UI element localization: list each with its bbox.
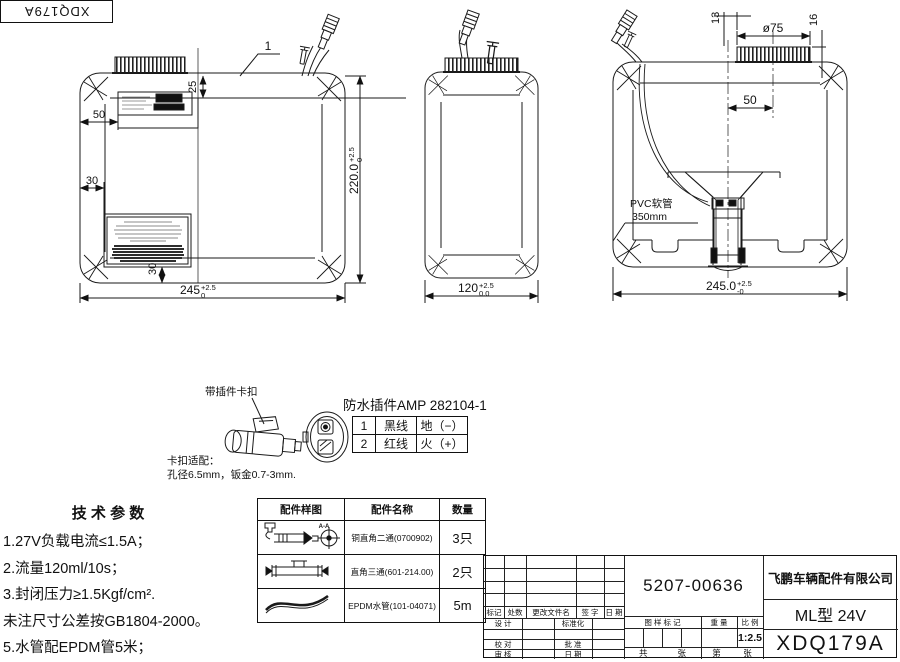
part-number: 5207-00636 bbox=[624, 556, 763, 616]
dim-height-220: 220.0 +2.5 0 bbox=[347, 147, 364, 194]
pin-polarity: 地（−） bbox=[417, 417, 468, 435]
rear-view-drawing: ø75 13 16 50 PVC软管 350mm 245.0 +2.5 -0 bbox=[609, 10, 847, 301]
outlet-nozzle-icon bbox=[297, 46, 310, 64]
part-name: 直角三通(601-214.00) bbox=[345, 555, 440, 589]
pin-row: 1 黑线 地（−） bbox=[353, 417, 468, 435]
parts-row: A-A 铜直角二通(0700902) 3只 bbox=[258, 521, 486, 555]
part-name: EPDM水管(101-04071) bbox=[345, 589, 440, 623]
svg-text:120: 120 bbox=[458, 281, 478, 295]
dim-30-left: 30 bbox=[86, 175, 98, 187]
dim-30-bottom: 30 bbox=[147, 263, 159, 275]
svg-text:245: 245 bbox=[180, 283, 200, 297]
svg-text:0.0: 0.0 bbox=[479, 289, 489, 298]
dim-50-front: 50 bbox=[93, 109, 105, 121]
svg-text:350mm: 350mm bbox=[632, 211, 667, 223]
side-view-drawing: 120 +2.5 0.0 bbox=[425, 10, 538, 303]
clip-fit-spec: 孔径6.5mm，钣金0.7-3mm. bbox=[167, 467, 296, 482]
parts-row: EPDM水管(101-04071) 5m bbox=[258, 589, 486, 623]
parts-table: 配件样图 配件名称 数量 A-A 铜直角二通(0700902) 3只 bbox=[257, 498, 486, 623]
filler-cap-side bbox=[443, 58, 520, 72]
front-view-drawing: 1 25 50 30 30 220.0 +2.5 0 245 +2.5 0 bbox=[80, 14, 406, 303]
dim-width-120: 120 +2.5 0.0 bbox=[458, 281, 494, 298]
label-drawing-mark: 图 样 标 记 bbox=[624, 616, 701, 628]
part-qty: 2只 bbox=[440, 555, 486, 589]
small-label bbox=[118, 92, 192, 115]
wire-plug-icon bbox=[609, 10, 637, 45]
label-weight: 重 量 bbox=[701, 616, 737, 628]
technical-parameters: 技 术 参 数 1.27V负载电流≤1.5A； 2.流量120ml/10s； 3… bbox=[3, 502, 265, 662]
sheet-total-prefix: 共 bbox=[639, 647, 648, 659]
elbow-fitting-sketch: A-A bbox=[258, 521, 345, 555]
tech-param-item: 未注尺寸公差按GB1804-2000。 bbox=[3, 609, 265, 636]
pin-polarity: 火（+） bbox=[417, 435, 468, 453]
rev-header-sign: 签 字 bbox=[576, 606, 604, 618]
pin-wire: 黑线 bbox=[376, 417, 417, 435]
title-block: 标记 处数 更改文件名 签 字 日 期 设 计 标准化 校 对 批 准 审 核 … bbox=[483, 555, 897, 658]
part-qty: 5m bbox=[440, 589, 486, 623]
sheet-total-suffix: 张 bbox=[677, 647, 686, 659]
svg-text:-0: -0 bbox=[737, 287, 744, 296]
tech-param-item: 5.水管配EPDM管5米； bbox=[3, 635, 265, 662]
epdm-hose-sketch bbox=[258, 589, 345, 623]
dim-width-245: 245 +2.5 0 bbox=[180, 283, 216, 300]
pin-wire: 红线 bbox=[376, 435, 417, 453]
filler-cap-front bbox=[112, 57, 188, 73]
frame-code-box: XDQ179A bbox=[0, 0, 113, 23]
dim-50-rear: 50 bbox=[743, 93, 757, 107]
parts-header-row: 配件样图 配件名称 数量 bbox=[258, 499, 486, 521]
tech-params-title: 技 术 参 数 bbox=[33, 502, 183, 523]
part-qty: 3只 bbox=[440, 521, 486, 555]
callout-1: 1 bbox=[265, 39, 272, 53]
tee-fitting-sketch bbox=[258, 555, 345, 589]
sheet-page-suffix: 张 bbox=[743, 647, 752, 659]
drawing-number: XDQ179A bbox=[763, 629, 898, 659]
svg-text:220.0: 220.0 bbox=[347, 164, 361, 194]
svg-text:PVC软管: PVC软管 bbox=[630, 197, 673, 210]
label-date: 日 期 bbox=[554, 649, 592, 659]
sheet-page-prefix: 第 bbox=[712, 647, 721, 659]
tech-param-item: 1.27V负载电流≤1.5A； bbox=[3, 529, 265, 556]
scale-value: 1:2.5 bbox=[737, 628, 763, 647]
parts-header-name: 配件名称 bbox=[345, 499, 440, 521]
label-approve: 批 准 bbox=[554, 639, 592, 649]
dim-width-245-rear: 245.0 +2.5 -0 bbox=[706, 279, 752, 296]
pump-wires-rear bbox=[609, 10, 642, 62]
rev-header-docname: 更改文件名 bbox=[526, 606, 576, 618]
pvc-hose-label: PVC软管 350mm bbox=[613, 197, 698, 241]
pin-table: 1 黑线 地（−） 2 红线 火（+） bbox=[352, 416, 468, 453]
label-design: 设 计 bbox=[484, 618, 522, 629]
tech-param-item: 2.流量120ml/10s； bbox=[3, 556, 265, 583]
company-name: 飞鹏车辆配件有限公司 bbox=[763, 556, 898, 599]
frame-code: XDQ179A bbox=[24, 4, 90, 19]
parts-header-sketch: 配件样图 bbox=[258, 499, 345, 521]
pump-wires-front bbox=[297, 14, 339, 76]
model-designation: ML型 24V bbox=[763, 599, 898, 629]
sheet-page-cell: 第 张 bbox=[701, 647, 763, 659]
parts-header-qty: 数量 bbox=[440, 499, 486, 521]
filler-cap-rear bbox=[735, 47, 812, 62]
dim-13: 13 bbox=[710, 12, 722, 24]
tech-param-item: 3.封闭压力≥1.5Kgf/cm². bbox=[3, 582, 265, 609]
wire-plug-icon bbox=[456, 10, 479, 46]
connector-detail-drawing bbox=[224, 398, 348, 462]
connector-side-view bbox=[224, 413, 303, 458]
label-proofread: 校 对 bbox=[484, 639, 522, 649]
rev-header-mark: 标记 bbox=[484, 606, 504, 618]
connector-front-view bbox=[303, 412, 348, 462]
label-standardization: 标准化 bbox=[554, 618, 592, 629]
pin-number: 1 bbox=[353, 417, 376, 435]
pin-number: 2 bbox=[353, 435, 376, 453]
clip-callout-label: 带插件卡扣 bbox=[205, 384, 258, 399]
clip-fit-title: 卡扣适配： bbox=[167, 453, 220, 468]
big-label bbox=[104, 214, 191, 267]
pump-wires-side bbox=[456, 10, 499, 64]
sheet-total-cell: 共 张 bbox=[624, 647, 701, 659]
dim-cap-diameter: ø75 bbox=[763, 21, 784, 35]
svg-text:0: 0 bbox=[355, 158, 364, 162]
engineering-drawing-sheet: { "frame_code": "XDQ179A", "views": { "f… bbox=[0, 0, 900, 660]
rev-header-count: 处数 bbox=[504, 606, 526, 618]
part-name: 铜直角二通(0700902) bbox=[345, 521, 440, 555]
section-mark-label: A-A bbox=[319, 524, 330, 530]
connector-title: 防水插件AMP 282104-1 bbox=[343, 394, 487, 414]
label-review: 审 核 bbox=[484, 649, 522, 659]
dim-25: 25 bbox=[187, 81, 199, 93]
dim-16: 16 bbox=[808, 14, 820, 26]
pin-row: 2 红线 火（+） bbox=[353, 435, 468, 453]
wire-plug-icon bbox=[315, 14, 339, 50]
rev-header-date: 日 期 bbox=[604, 606, 624, 618]
parts-row: 直角三通(601-214.00) 2只 bbox=[258, 555, 486, 589]
svg-text:245.0: 245.0 bbox=[706, 279, 736, 293]
svg-text:0: 0 bbox=[201, 291, 205, 300]
label-scale: 比 例 bbox=[737, 616, 763, 628]
